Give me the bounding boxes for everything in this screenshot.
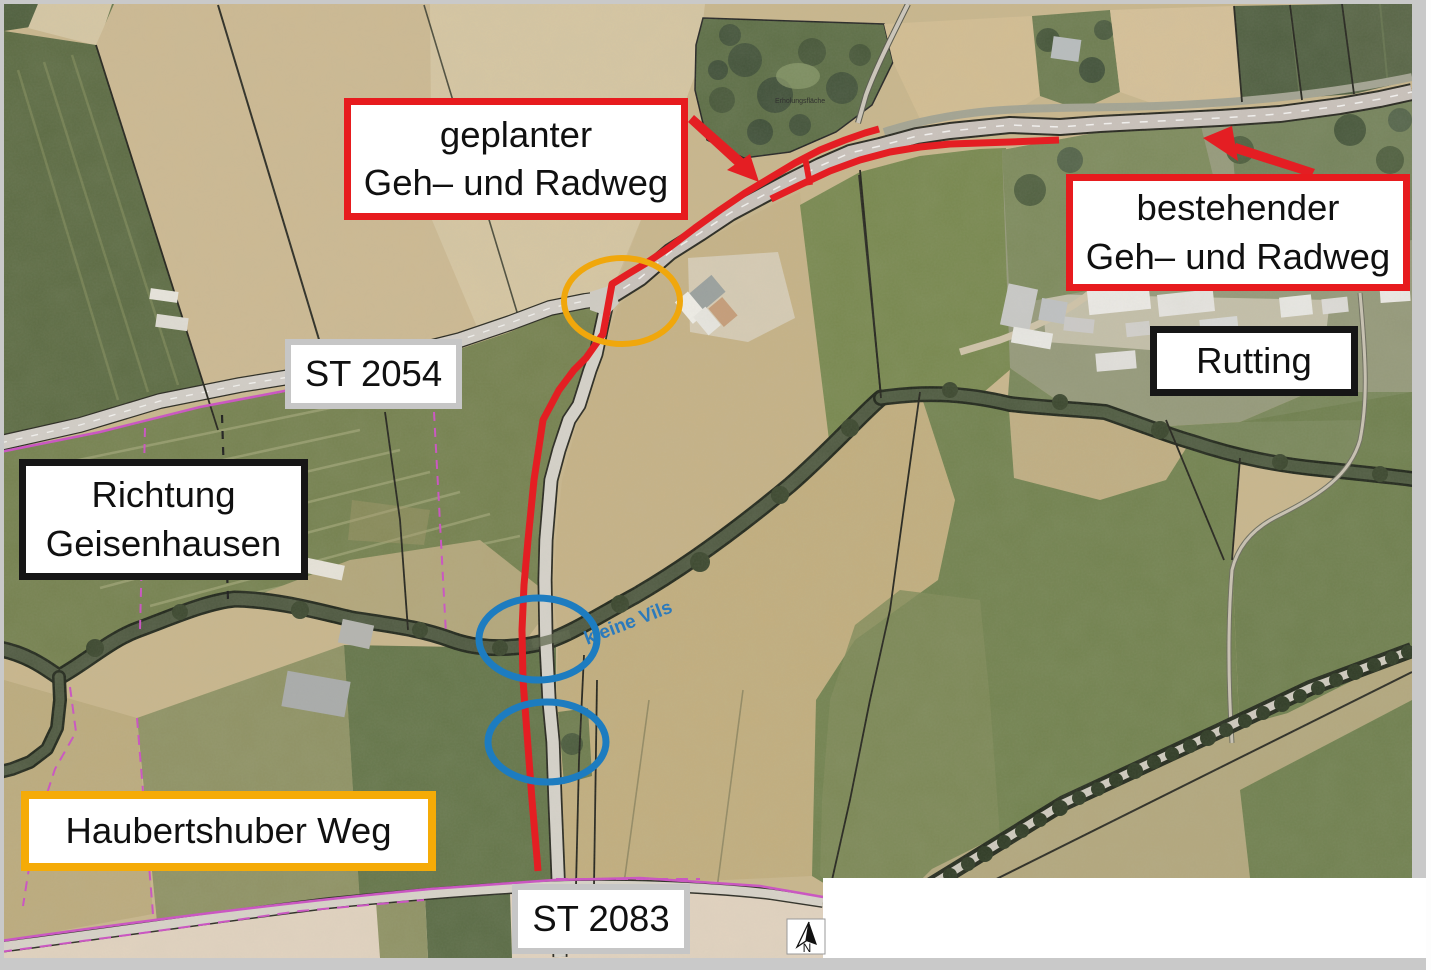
svg-text:N: N — [803, 941, 812, 955]
